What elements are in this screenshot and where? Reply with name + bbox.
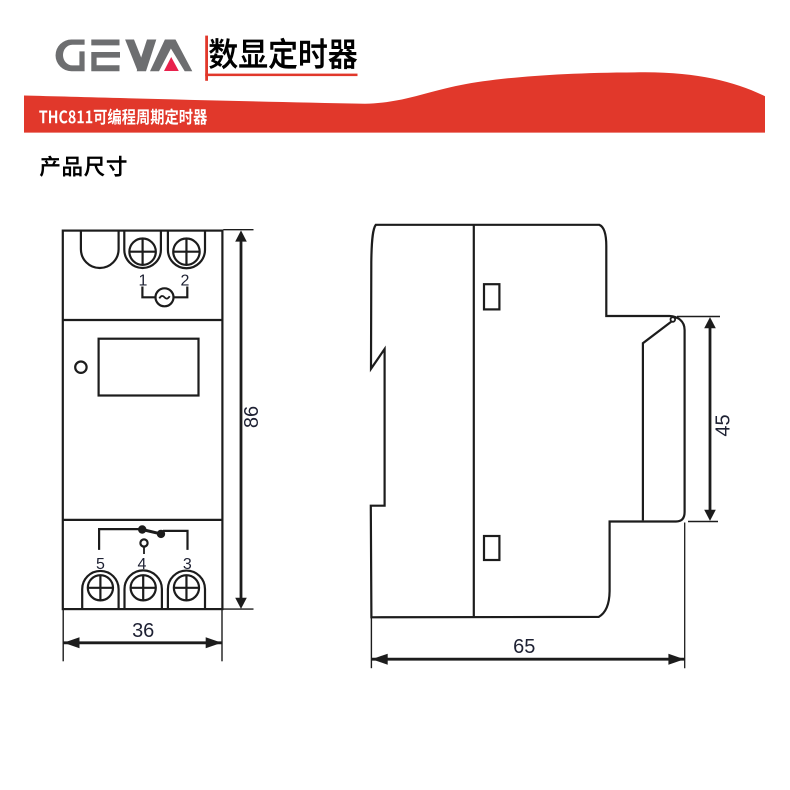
- svg-text:86: 86: [241, 406, 263, 428]
- svg-text:45: 45: [712, 414, 734, 436]
- svg-text:36: 36: [132, 620, 154, 642]
- svg-text:65: 65: [513, 636, 535, 658]
